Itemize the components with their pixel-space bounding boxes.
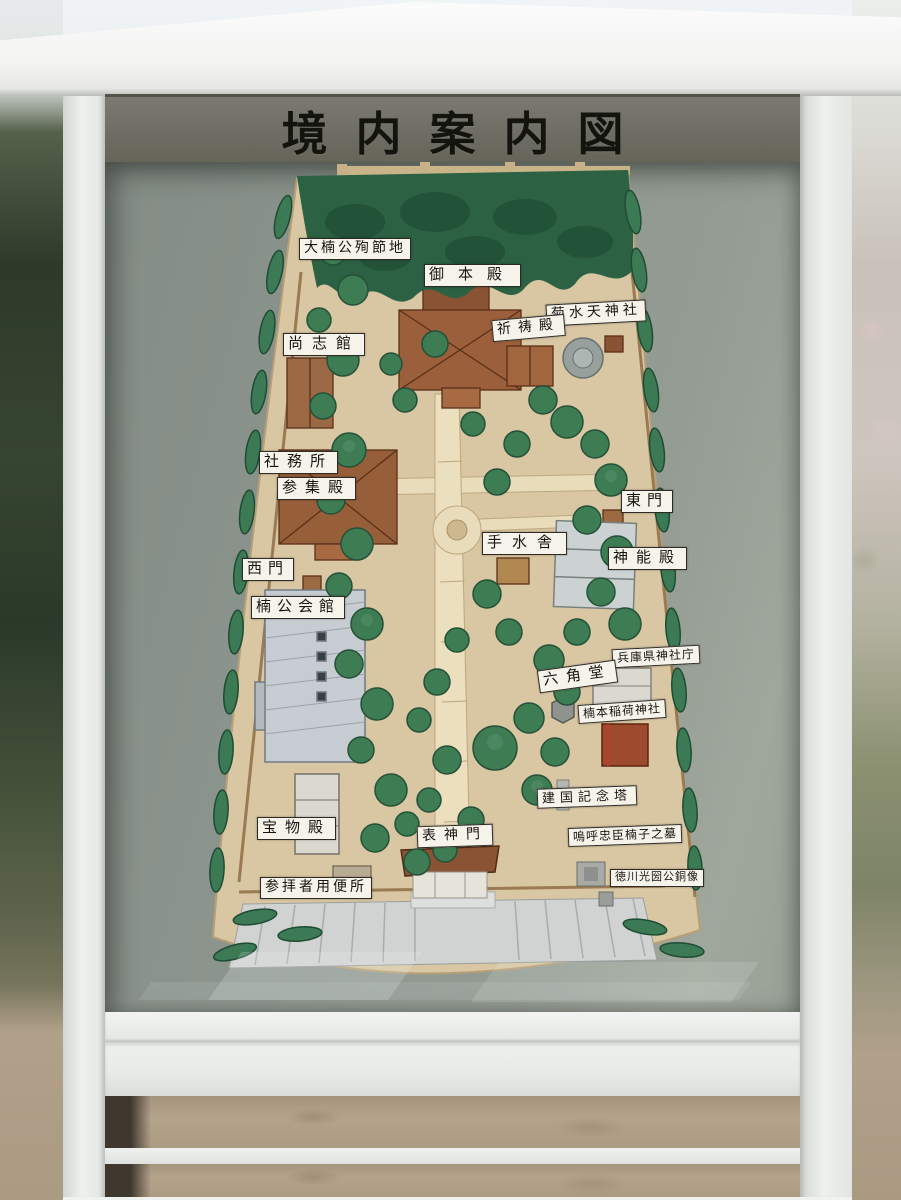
gap-shadow [105,1164,151,1197]
map-label-nanko-kaikan: 楠公会館 [251,596,345,619]
sign-roof [0,0,901,96]
map-label-kenkoku-kinento: 建国記念塔 [537,785,638,809]
map-label-toilet: 参拝者用便所 [260,877,372,899]
sign-post-left [63,90,105,1200]
map-label-nishimon: 西門 [242,558,294,581]
map-label-mitsukuni-statue: 徳川光圀公銅像 [610,869,704,887]
sign-sill [105,1012,800,1042]
map-label-omote-shinmon: 表神門 [417,824,494,848]
glass-panel: 大楠公殉節地 御本殿 菊水天神社 祈祷殿 尚志館 社務所 参集殿 東門 手水舎 … [105,162,800,1012]
background-trees-right [852,0,901,1200]
map-label-homotsuden: 宝物殿 [257,817,336,840]
map-label-higashimon: 東門 [621,490,673,513]
map-label-shoshikan: 尚志館 [283,333,365,356]
sign-lower-rail [105,1148,800,1164]
map-label-shinnoden: 神能殿 [608,547,687,570]
map-label-shamusho: 社務所 [259,451,338,474]
map-label-sanshuden: 参集殿 [277,477,356,500]
map-label-gohonden: 御本殿 [424,264,521,287]
sign-open-gap-lower [105,1164,800,1197]
map-label-nanshi-no-haka: 嗚呼忠臣楠子之墓 [568,824,683,847]
sign-post-right [800,90,852,1200]
sign-lower-beam [105,1042,800,1096]
sign-title-band: 境内案内図 [105,94,800,165]
glass-reflection [139,982,752,1000]
sign-title: 境内案内図 [254,98,652,164]
map-label-junsetsuchi: 大楠公殉節地 [299,238,411,260]
gap-shadow [105,1096,151,1148]
background-trees-left [0,0,63,1200]
photo-of-shrine-map-sign: 境内案内図 [0,0,901,1200]
map-label-temizusha: 手水舎 [482,532,567,555]
sign-open-gap-upper [105,1096,800,1148]
